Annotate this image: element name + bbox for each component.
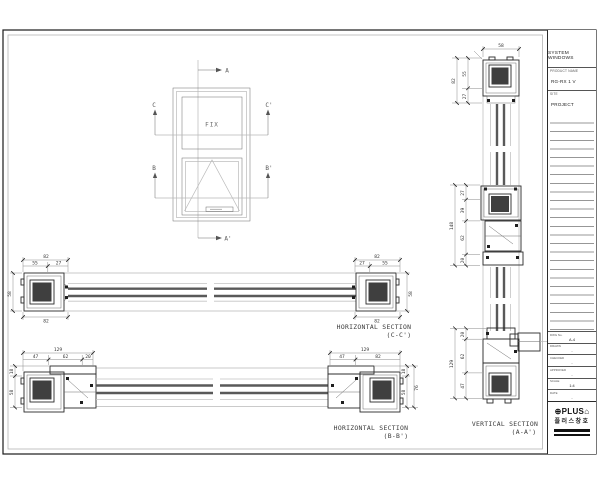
logo-house-icon: ⌂ [584,407,589,416]
dim-aa-bot-a: 20 [460,332,466,338]
logo-wordmark: ⊕PLUS⌂ [548,408,596,416]
field-value: - [548,373,596,377]
dim-bb-right-h1: 18 [401,369,407,375]
title-block-site: SITE PROJECT [548,91,596,115]
section-cc: 82 55 27 58 82 82 27 55 58 82 HORIZONTAL… [7,254,414,339]
section-marker-a-prime: A' [224,236,231,243]
dim-aa-mid-d: 20 [460,258,466,264]
dim-cc-left-b: 27 [56,261,62,267]
field-dwg-no: DWG No. A-4 [548,331,596,343]
field-value: A-4 [548,338,596,342]
section-marker-a: A [225,68,229,75]
dim-aa-bot-b: 62 [460,354,466,360]
dim-aa-mid-c: 62 [460,235,466,241]
logo-bar-thin [554,434,590,436]
dim-cc-right-b: 55 [382,261,388,267]
field-drawn: DRAWN - [548,343,596,355]
field-approved: APPROVED - [548,366,596,378]
section-bb: 129 47 62 20 18 58 129 47 82 18 58 76 HO… [9,347,420,440]
field-value: 1:4 [548,384,596,388]
elevation-view: A A' FIX C C' B B' [152,60,272,243]
field-scale: SCALE 1:4 [548,378,596,390]
section-marker-c-prime: C' [265,102,272,109]
dim-cc-right-a: 27 [359,261,365,267]
title-block-fields: DWG No. A-4 DRAWN - CHECKED - APPROVED -… [548,331,596,401]
title-block-system: SYSTEM WINDOWS [548,30,596,68]
field-date: DATE - [548,389,596,401]
dim-bb-right-a: 47 [339,354,345,360]
dim-aa-top-width: 58 [498,43,504,49]
dim-bb-left-total: 129 [54,347,63,353]
field-checked: CHECKED - [548,354,596,366]
dim-bb-right-total: 129 [361,347,370,353]
field-label: APPROVED [550,368,566,372]
drawing-sheet: A A' FIX C C' B B' [0,0,600,480]
dim-aa-mid-a: 27 [460,190,466,196]
dim-bb-right-h2: 58 [401,390,407,396]
dim-cc-left-a: 55 [32,261,38,267]
field-label: DRAWN [550,344,561,348]
section-marker-b-prime: B' [265,165,272,172]
dim-aa-head-total: 82 [451,78,457,84]
field-label: CHECKED [550,356,564,360]
dim-aa-bot-total: 129 [449,360,455,369]
field-label: DWG No. [550,333,562,337]
dim-bb-left-b: 62 [63,354,69,360]
dim-cc-right-total: 82 [374,254,380,260]
field-value: - [548,396,596,400]
dim-aa-mid-total: 148 [449,222,455,231]
dim-bb-left-h2: 58 [9,390,15,396]
section-marker-c: C [152,102,156,109]
dim-cc-left-height: 58 [7,291,13,297]
dim-bb-right-b: 82 [375,354,381,360]
logo-text: PLUS [562,407,585,416]
dim-cc-right-height: 58 [408,291,414,297]
title-block: SYSTEM WINDOWS PRODUCT NAME RG-RX 1 V SI… [547,30,596,454]
section-bb-title: HORIZONTAL SECTION [334,424,409,432]
section-bb-subtitle: (B-B') [384,432,409,440]
title-block-product: PRODUCT NAME RG-RX 1 V [548,68,596,91]
section-aa-subtitle: (A-A') [512,428,537,436]
site-label: SITE [550,92,558,96]
dim-bb-left-h1: 18 [9,369,15,375]
logo-korean-text: 플러스창호 [548,419,596,425]
dim-aa-head-b: 27 [462,94,468,100]
fix-panel-label: FIX [205,122,219,129]
product-value: RG-RX 1 V [551,79,576,84]
company-logo: ⊕PLUS⌂ 플러스창호 [548,401,596,454]
section-cc-subtitle: (C-C') [387,331,412,339]
dim-cc-bottom-left: 82 [43,319,49,325]
dim-aa-mid-b: 39 [460,208,466,214]
dim-bb-left-a: 47 [33,354,39,360]
dim-aa-bot-c: 47 [460,383,466,389]
site-value: PROJECT [551,102,574,107]
section-aa-title: VERTICAL SECTION [472,420,538,428]
field-value: - [548,349,596,353]
field-label: DATE [550,391,558,395]
product-label: PRODUCT NAME [550,69,578,73]
dim-aa-head-a: 55 [462,71,468,77]
section-aa: 58 55 27 82 [449,43,547,436]
logo-bar-thick [554,429,590,432]
cad-drawing-canvas: A A' FIX C C' B B' [0,0,600,480]
section-cc-title: HORIZONTAL SECTION [337,323,412,331]
section-marker-b: B [152,165,156,172]
field-value: - [548,361,596,365]
dim-bb-left-c: 20 [85,354,91,360]
logo-circle-plus-icon: ⊕ [555,407,562,416]
dim-cc-left-total: 82 [43,254,49,260]
dim-bb-right-total-v: 76 [414,385,420,391]
title-block-ruled-lines [550,115,594,331]
field-label: SCALE [550,379,559,383]
